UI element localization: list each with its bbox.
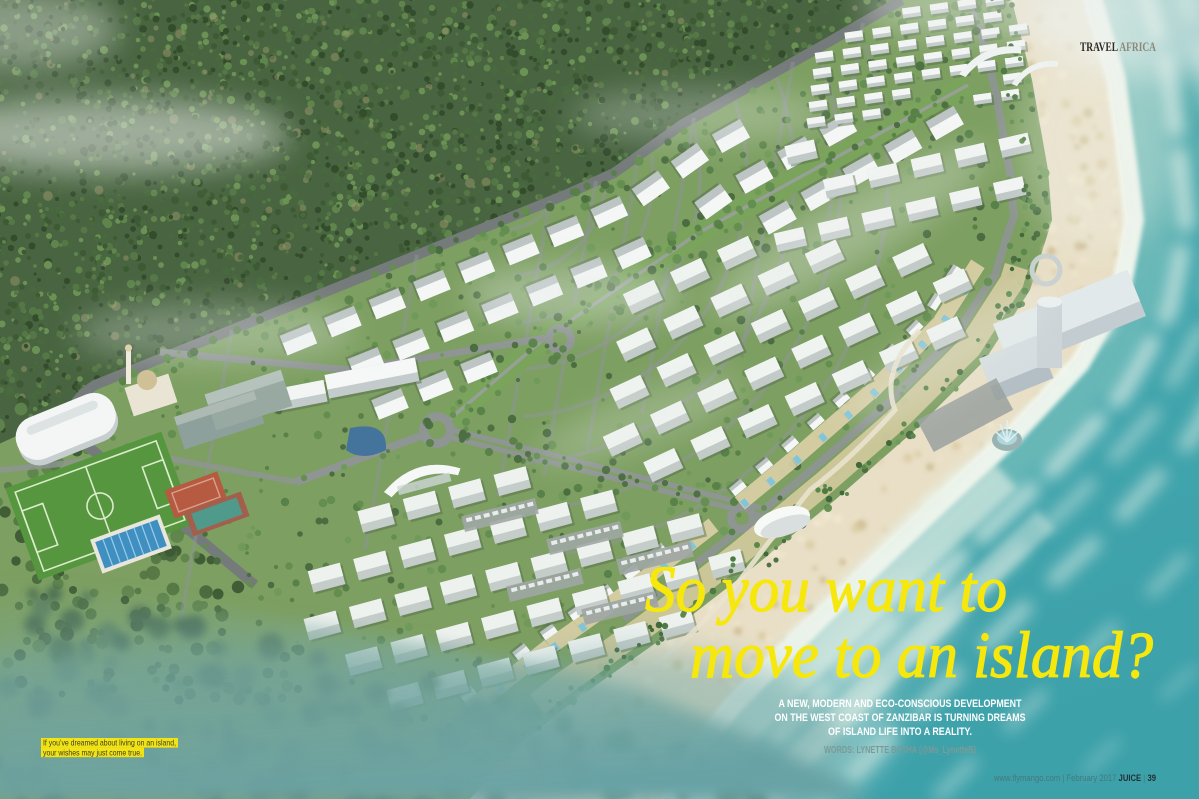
svg-text:A NEW, MODERN AND ECO-CONSCIOU: A NEW, MODERN AND ECO-CONSCIOUS DEVELOPM… (779, 698, 1022, 710)
svg-text:OF ISLAND LIFE INTO A REALITY.: OF ISLAND LIFE INTO A REALITY. (828, 726, 972, 738)
svg-text:WORDS: LYNETTE BOTHA (@Ms_Lyne: WORDS: LYNETTE BOTHA (@Ms_LynetteB) (824, 745, 976, 756)
svg-text:move to an island?: move to an island? (690, 619, 1153, 692)
svg-text:If you’ve dreamed about living: If you’ve dreamed about living on an isl… (43, 738, 176, 748)
svg-text:So you want to: So you want to (645, 553, 1007, 626)
svg-text:ON THE WEST COAST OF ZANZIBAR: ON THE WEST COAST OF ZANZIBAR IS TURNING… (775, 712, 1026, 724)
svg-text:your wishes may just come true: your wishes may just come true. (43, 747, 142, 757)
svg-text:TRAVEL AFRICA: TRAVEL AFRICA (1080, 39, 1156, 54)
svg-text:www.flymango.com | February: www.flymango.com | February 2017 JUICE |… (993, 773, 1156, 784)
